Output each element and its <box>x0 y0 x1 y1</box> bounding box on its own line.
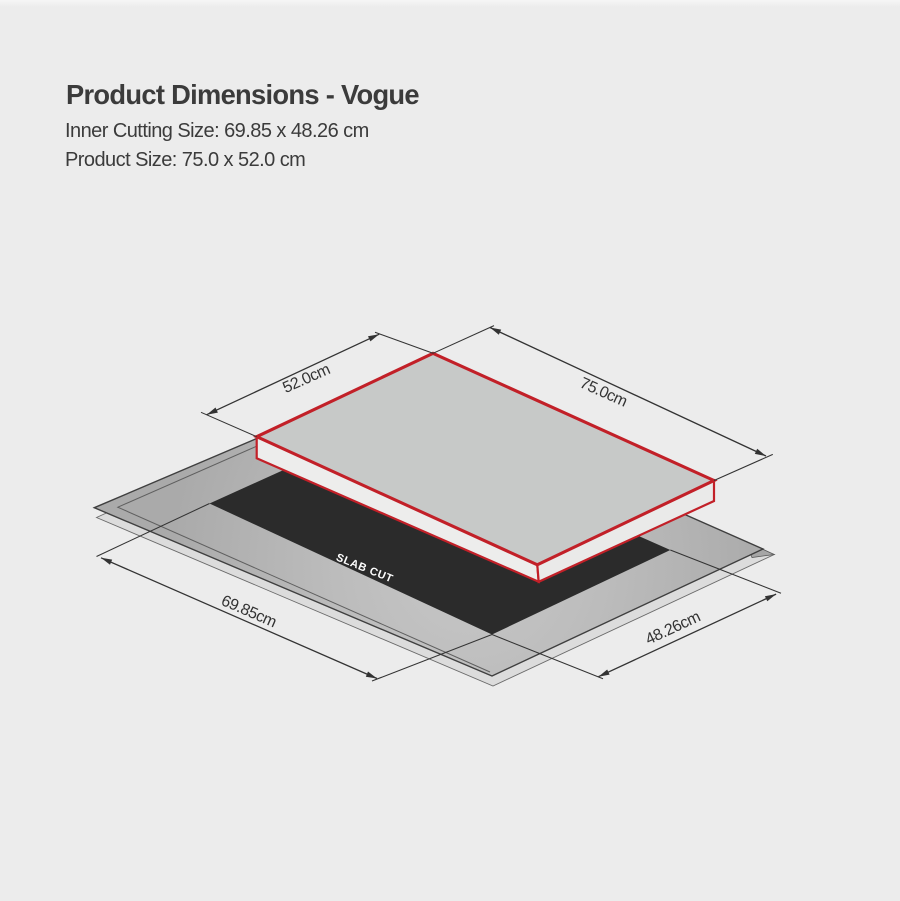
svg-text:69.85cm: 69.85cm <box>219 592 279 631</box>
svg-text:52.0cm: 52.0cm <box>280 361 332 397</box>
